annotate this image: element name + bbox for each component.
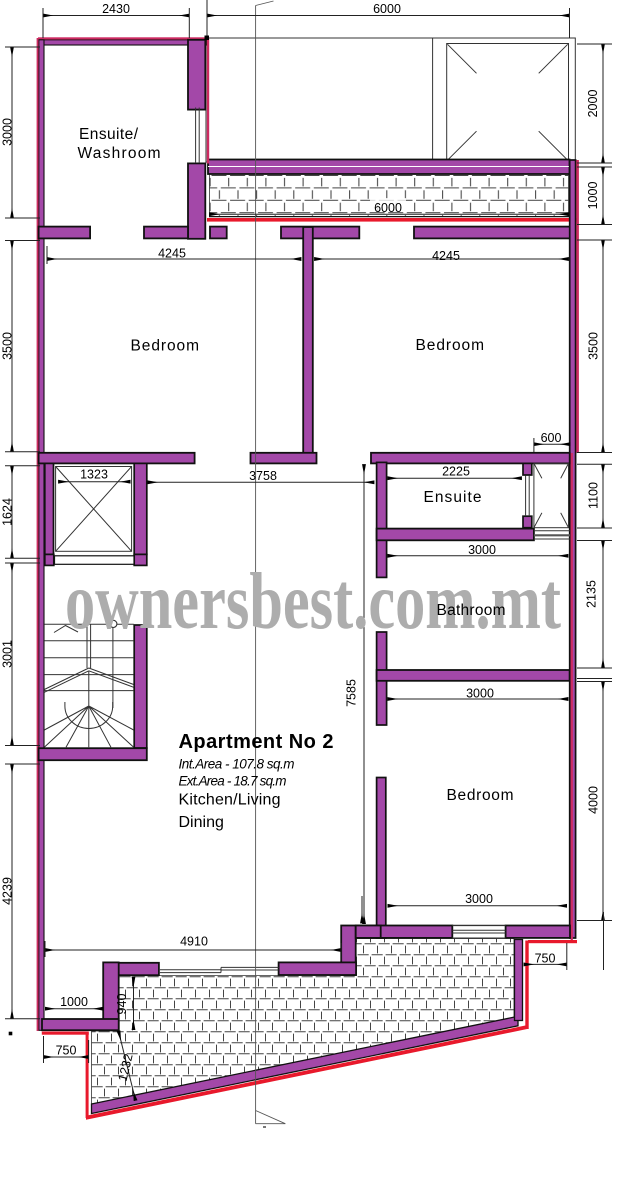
- svg-text:Bedroom: Bedroom: [131, 338, 200, 355]
- svg-text:750: 750: [535, 952, 556, 966]
- svg-text:3000: 3000: [1, 118, 15, 146]
- svg-text:6000: 6000: [373, 2, 401, 16]
- svg-text:2225: 2225: [442, 465, 470, 479]
- svg-text:6000: 6000: [374, 201, 402, 215]
- svg-text:3000: 3000: [466, 687, 494, 701]
- svg-text:4000: 4000: [587, 786, 601, 814]
- svg-text:1100: 1100: [587, 482, 601, 509]
- svg-text:2430: 2430: [102, 2, 130, 16]
- svg-text:1000: 1000: [60, 995, 88, 1009]
- svg-text:Ext.Area - 18.7 sq.m: Ext.Area - 18.7 sq.m: [179, 774, 287, 789]
- svg-text:600: 600: [541, 431, 562, 445]
- svg-text:Int.Area - 107.8 sq.m: Int.Area - 107.8 sq.m: [179, 757, 295, 772]
- svg-text:3000: 3000: [465, 892, 493, 906]
- svg-text:4239: 4239: [1, 877, 15, 905]
- svg-text:3758: 3758: [249, 469, 277, 483]
- svg-text:940: 940: [115, 994, 129, 1015]
- svg-text:3000: 3000: [468, 543, 496, 557]
- svg-text:2000: 2000: [586, 90, 600, 118]
- svg-text:750: 750: [56, 1044, 77, 1058]
- svg-text:2135: 2135: [585, 580, 599, 608]
- svg-text:3500: 3500: [587, 332, 601, 360]
- svg-text:4245: 4245: [432, 249, 460, 263]
- svg-text:4245: 4245: [158, 247, 186, 261]
- svg-text:1624: 1624: [1, 498, 15, 526]
- svg-text:Bedroom: Bedroom: [447, 787, 514, 804]
- svg-text:1323: 1323: [80, 468, 108, 482]
- svg-text:Kitchen/Living: Kitchen/Living: [179, 792, 281, 809]
- svg-text:1000: 1000: [586, 182, 600, 210]
- svg-text:Bathroom: Bathroom: [437, 602, 506, 619]
- svg-text:Bedroom: Bedroom: [416, 337, 485, 354]
- svg-text:Dining: Dining: [179, 814, 224, 831]
- svg-text:3500: 3500: [1, 332, 15, 360]
- svg-text:Ensuite: Ensuite: [424, 489, 482, 506]
- svg-text:Apartment No 2: Apartment No 2: [179, 731, 334, 753]
- svg-text:Ensuite/: Ensuite/: [79, 126, 139, 143]
- svg-text:Washroom: Washroom: [78, 145, 161, 162]
- svg-text:3001: 3001: [1, 640, 15, 668]
- svg-text:7585: 7585: [345, 679, 359, 707]
- svg-text:4910: 4910: [180, 935, 208, 949]
